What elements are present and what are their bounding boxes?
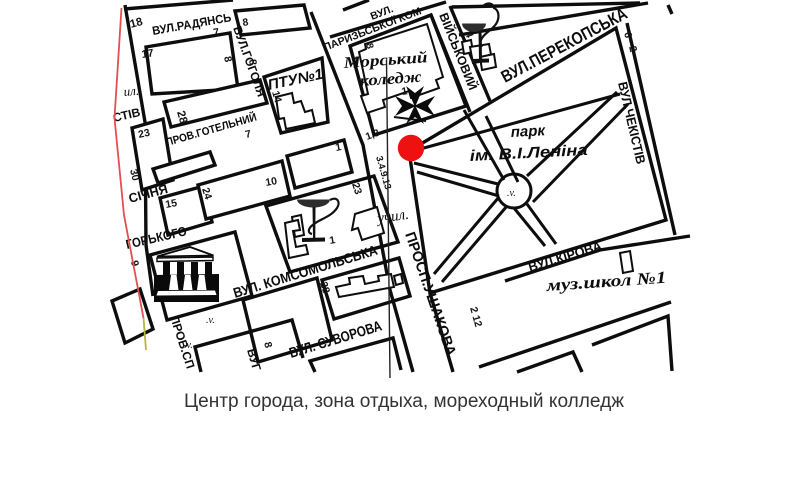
svg-text:10: 10 xyxy=(264,175,278,189)
svg-text:ил.: ил. xyxy=(123,83,140,99)
svg-text:Центр города, зона отдыха, мор: Центр города, зона отдыха, мореходный ко… xyxy=(184,391,624,412)
svg-text:.v.: .v. xyxy=(507,188,516,199)
svg-text:.v.: .v. xyxy=(184,340,193,351)
svg-text:.v.: .v. xyxy=(206,315,215,326)
svg-text:15: 15 xyxy=(164,197,178,211)
svg-text:17: 17 xyxy=(141,47,155,61)
svg-text:парк: парк xyxy=(510,122,547,141)
